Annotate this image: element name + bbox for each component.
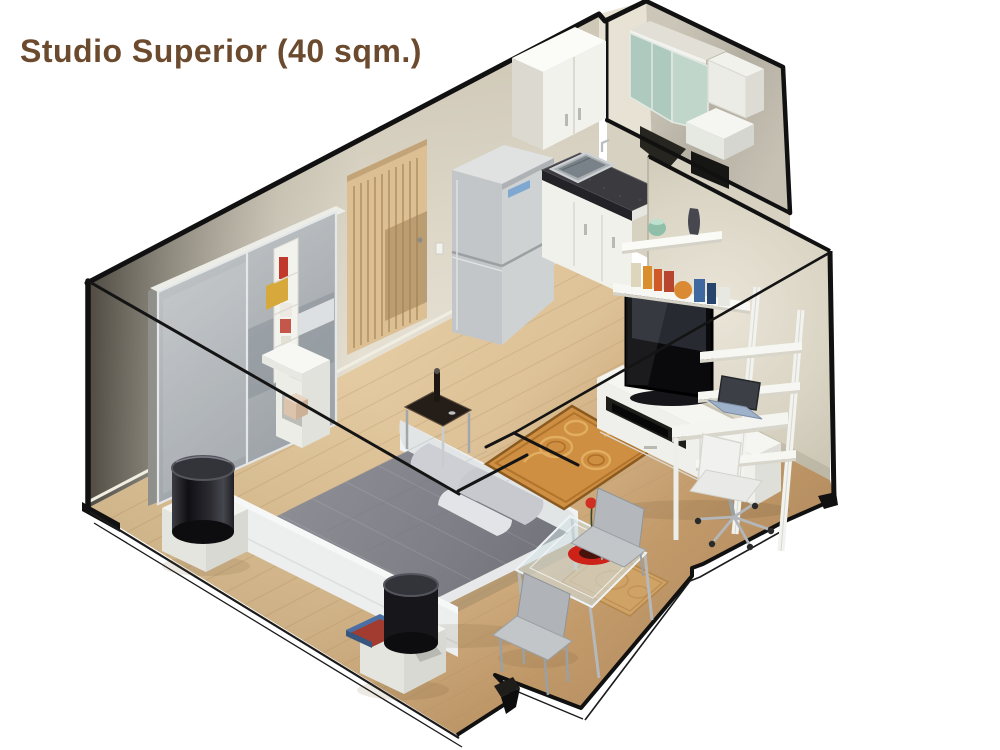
svg-text:Studio Superior (40 sqm.): Studio Superior (40 sqm.) [20, 33, 422, 69]
